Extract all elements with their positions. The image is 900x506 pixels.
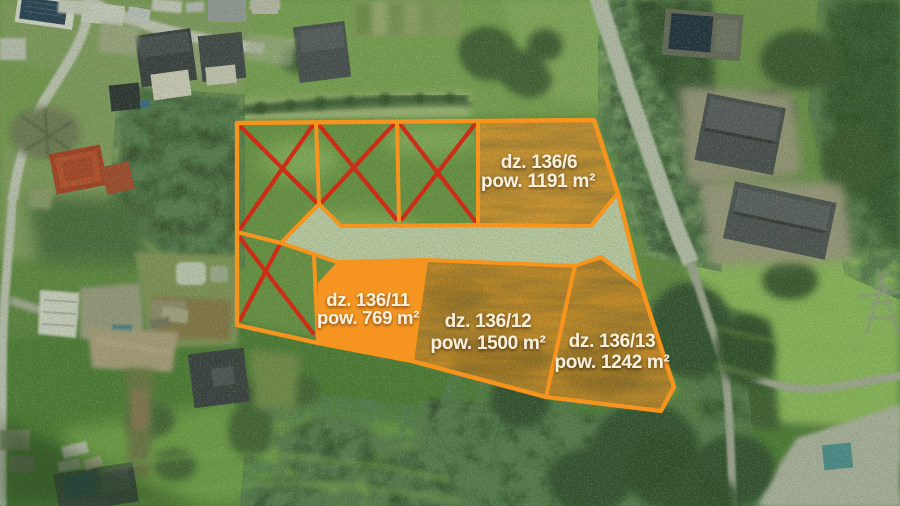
svg-text:pow. 1500 m²: pow. 1500 m² [430, 333, 545, 354]
svg-text:pow. 1242 m²: pow. 1242 m² [554, 352, 669, 373]
svg-text:pow. 1191 m²: pow. 1191 m² [481, 171, 595, 192]
svg-text:dz. 136/12: dz. 136/12 [445, 311, 532, 332]
svg-text:dz. 136/6: dz. 136/6 [501, 152, 578, 173]
svg-text:dz. 136/13: dz. 136/13 [569, 331, 656, 352]
svg-text:pow. 769 m²: pow. 769 m² [317, 307, 419, 328]
